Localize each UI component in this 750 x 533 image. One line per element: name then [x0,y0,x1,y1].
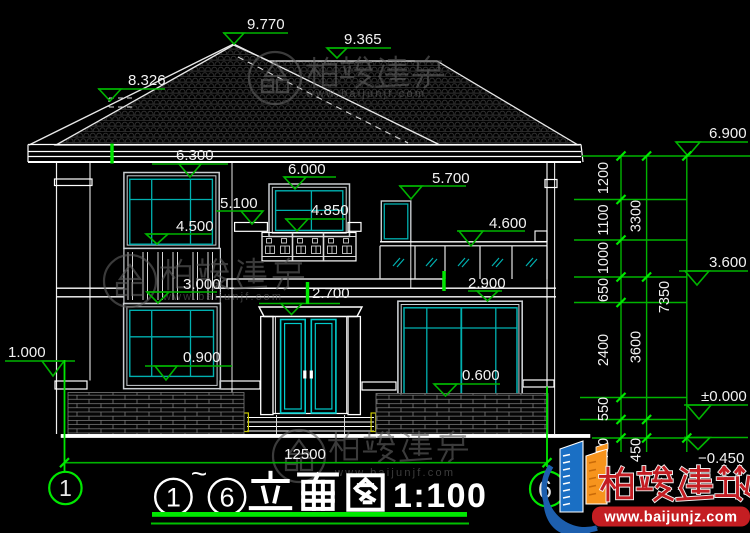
svg-text:−0.450: −0.450 [698,450,744,467]
svg-text:1000: 1000 [596,242,612,274]
svg-text:650: 650 [596,278,612,302]
svg-text:9.365: 9.365 [344,31,382,48]
svg-text:3.600: 3.600 [709,254,747,271]
svg-text:3600: 3600 [629,331,645,363]
svg-text:3.000: 3.000 [183,276,221,293]
svg-text:www.baijunjf.com: www.baijunjf.com [305,88,426,100]
svg-text:~: ~ [191,458,207,489]
svg-text:4.600: 4.600 [489,215,527,232]
svg-text:8.326: 8.326 [128,72,166,89]
svg-text:3300: 3300 [629,200,645,232]
svg-text:1200: 1200 [596,162,612,194]
svg-text:www.baijunjz.com: www.baijunjz.com [603,510,737,526]
svg-text:2.900: 2.900 [468,275,506,292]
svg-text:1: 1 [166,483,181,513]
svg-text:6.900: 6.900 [709,125,747,142]
svg-text:4.500: 4.500 [176,218,214,235]
svg-text:1:100: 1:100 [393,477,487,515]
svg-text:4.850: 4.850 [311,202,349,219]
svg-text:7350: 7350 [657,281,673,313]
svg-text:1.000: 1.000 [8,344,46,361]
svg-text:1100: 1100 [596,204,612,235]
svg-text:6.300: 6.300 [176,147,214,164]
svg-text:5.700: 5.700 [432,170,470,187]
svg-text:2.700: 2.700 [312,285,350,302]
svg-text:2400: 2400 [596,334,612,366]
svg-text:6: 6 [219,483,234,513]
svg-text:12500: 12500 [284,446,326,463]
svg-text:550: 550 [596,397,612,421]
svg-text:9.770: 9.770 [247,16,285,33]
svg-text:5.100: 5.100 [220,195,258,212]
svg-text:±0.000: ±0.000 [701,388,747,405]
svg-text:6.000: 6.000 [288,161,326,178]
svg-text:0.600: 0.600 [462,367,500,384]
svg-text:450: 450 [629,438,645,462]
svg-text:0.900: 0.900 [183,349,221,366]
svg-text:1: 1 [59,475,72,501]
